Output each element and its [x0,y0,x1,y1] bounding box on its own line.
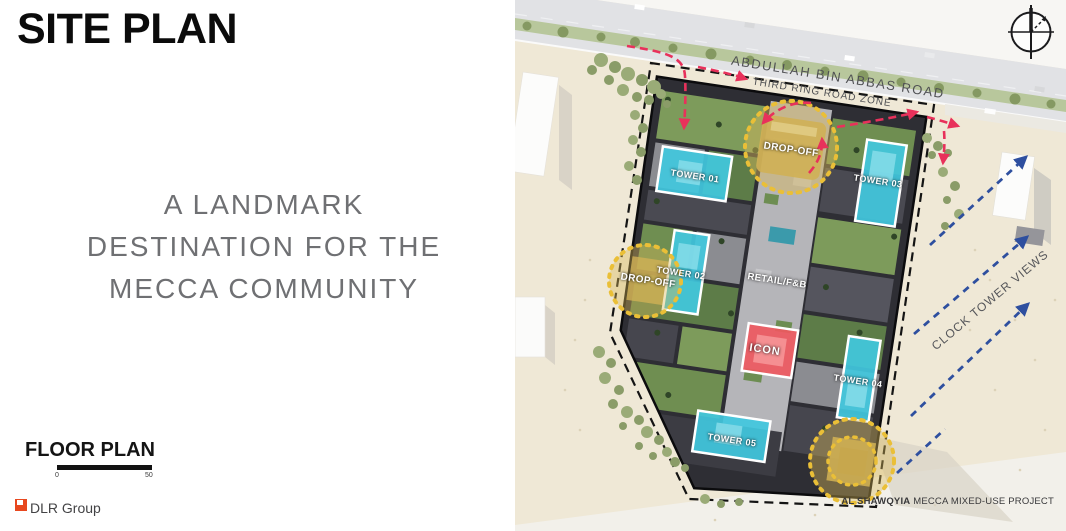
site-plan-slide: SITE PLAN A LANDMARK DESTINATION FOR THE… [0,0,1066,531]
tagline-line-1: A LANDMARK [18,184,510,226]
site-plan-map: ABDULLAH BIN ABBAS ROAD THIRD RING ROAD … [515,0,1066,531]
scale-bar [57,465,152,470]
project-caption: AL SHAWQYIA MECCA MIXED-USE PROJECT [841,496,1054,507]
scale-start: 0 [55,472,59,479]
project-caption-name: AL SHAWQYIA [841,496,910,507]
scale-end: 50 [145,472,153,479]
dlr-logo-text: DLR Group [30,500,101,516]
tagline-line-2: DESTINATION FOR THE [18,226,510,268]
dlr-logo-mark-icon [15,499,27,511]
floor-plan-label: FLOOR PLAN [25,439,155,462]
dlr-group-logo: DLR Group [15,499,101,516]
project-caption-rest: MECCA MIXED-USE PROJECT [910,496,1054,507]
tagline: A LANDMARK DESTINATION FOR THE MECCA COM… [18,184,510,310]
page-title: SITE PLAN [17,5,237,54]
site-plan-drawing [515,0,1066,531]
tagline-line-3: MECCA COMMUNITY [18,268,510,310]
